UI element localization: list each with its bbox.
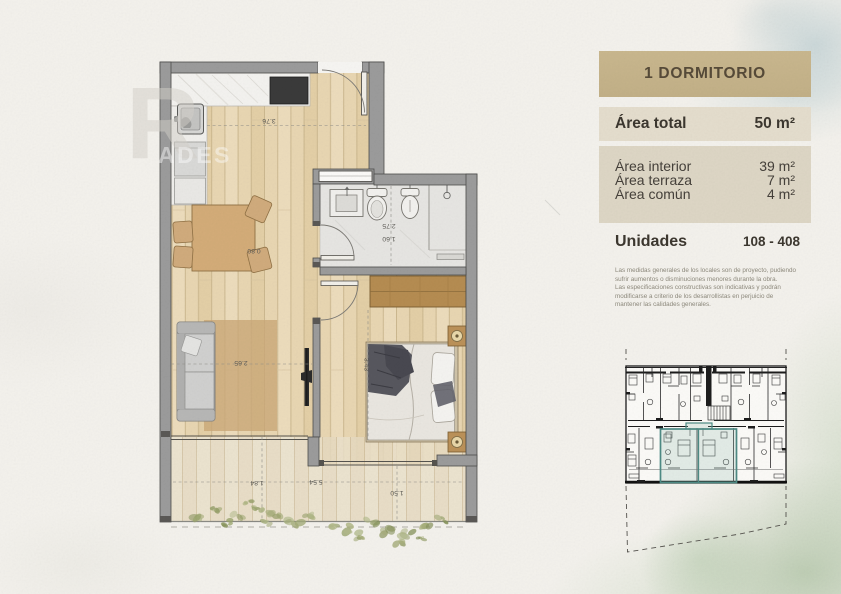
svg-text:ADES: ADES xyxy=(158,142,232,168)
svg-text:3.43: 3.43 xyxy=(363,358,370,371)
svg-text:1.84: 1.84 xyxy=(250,479,263,486)
svg-text:2.65: 2.65 xyxy=(234,359,247,366)
svg-text:1.60: 1.60 xyxy=(382,235,395,242)
svg-text:3.76: 3.76 xyxy=(262,117,275,124)
svg-text:2.75: 2.75 xyxy=(382,222,395,229)
svg-text:1.50: 1.50 xyxy=(390,489,403,496)
svg-text:0.80: 0.80 xyxy=(247,247,260,254)
svg-text:5.54: 5.54 xyxy=(309,478,322,485)
